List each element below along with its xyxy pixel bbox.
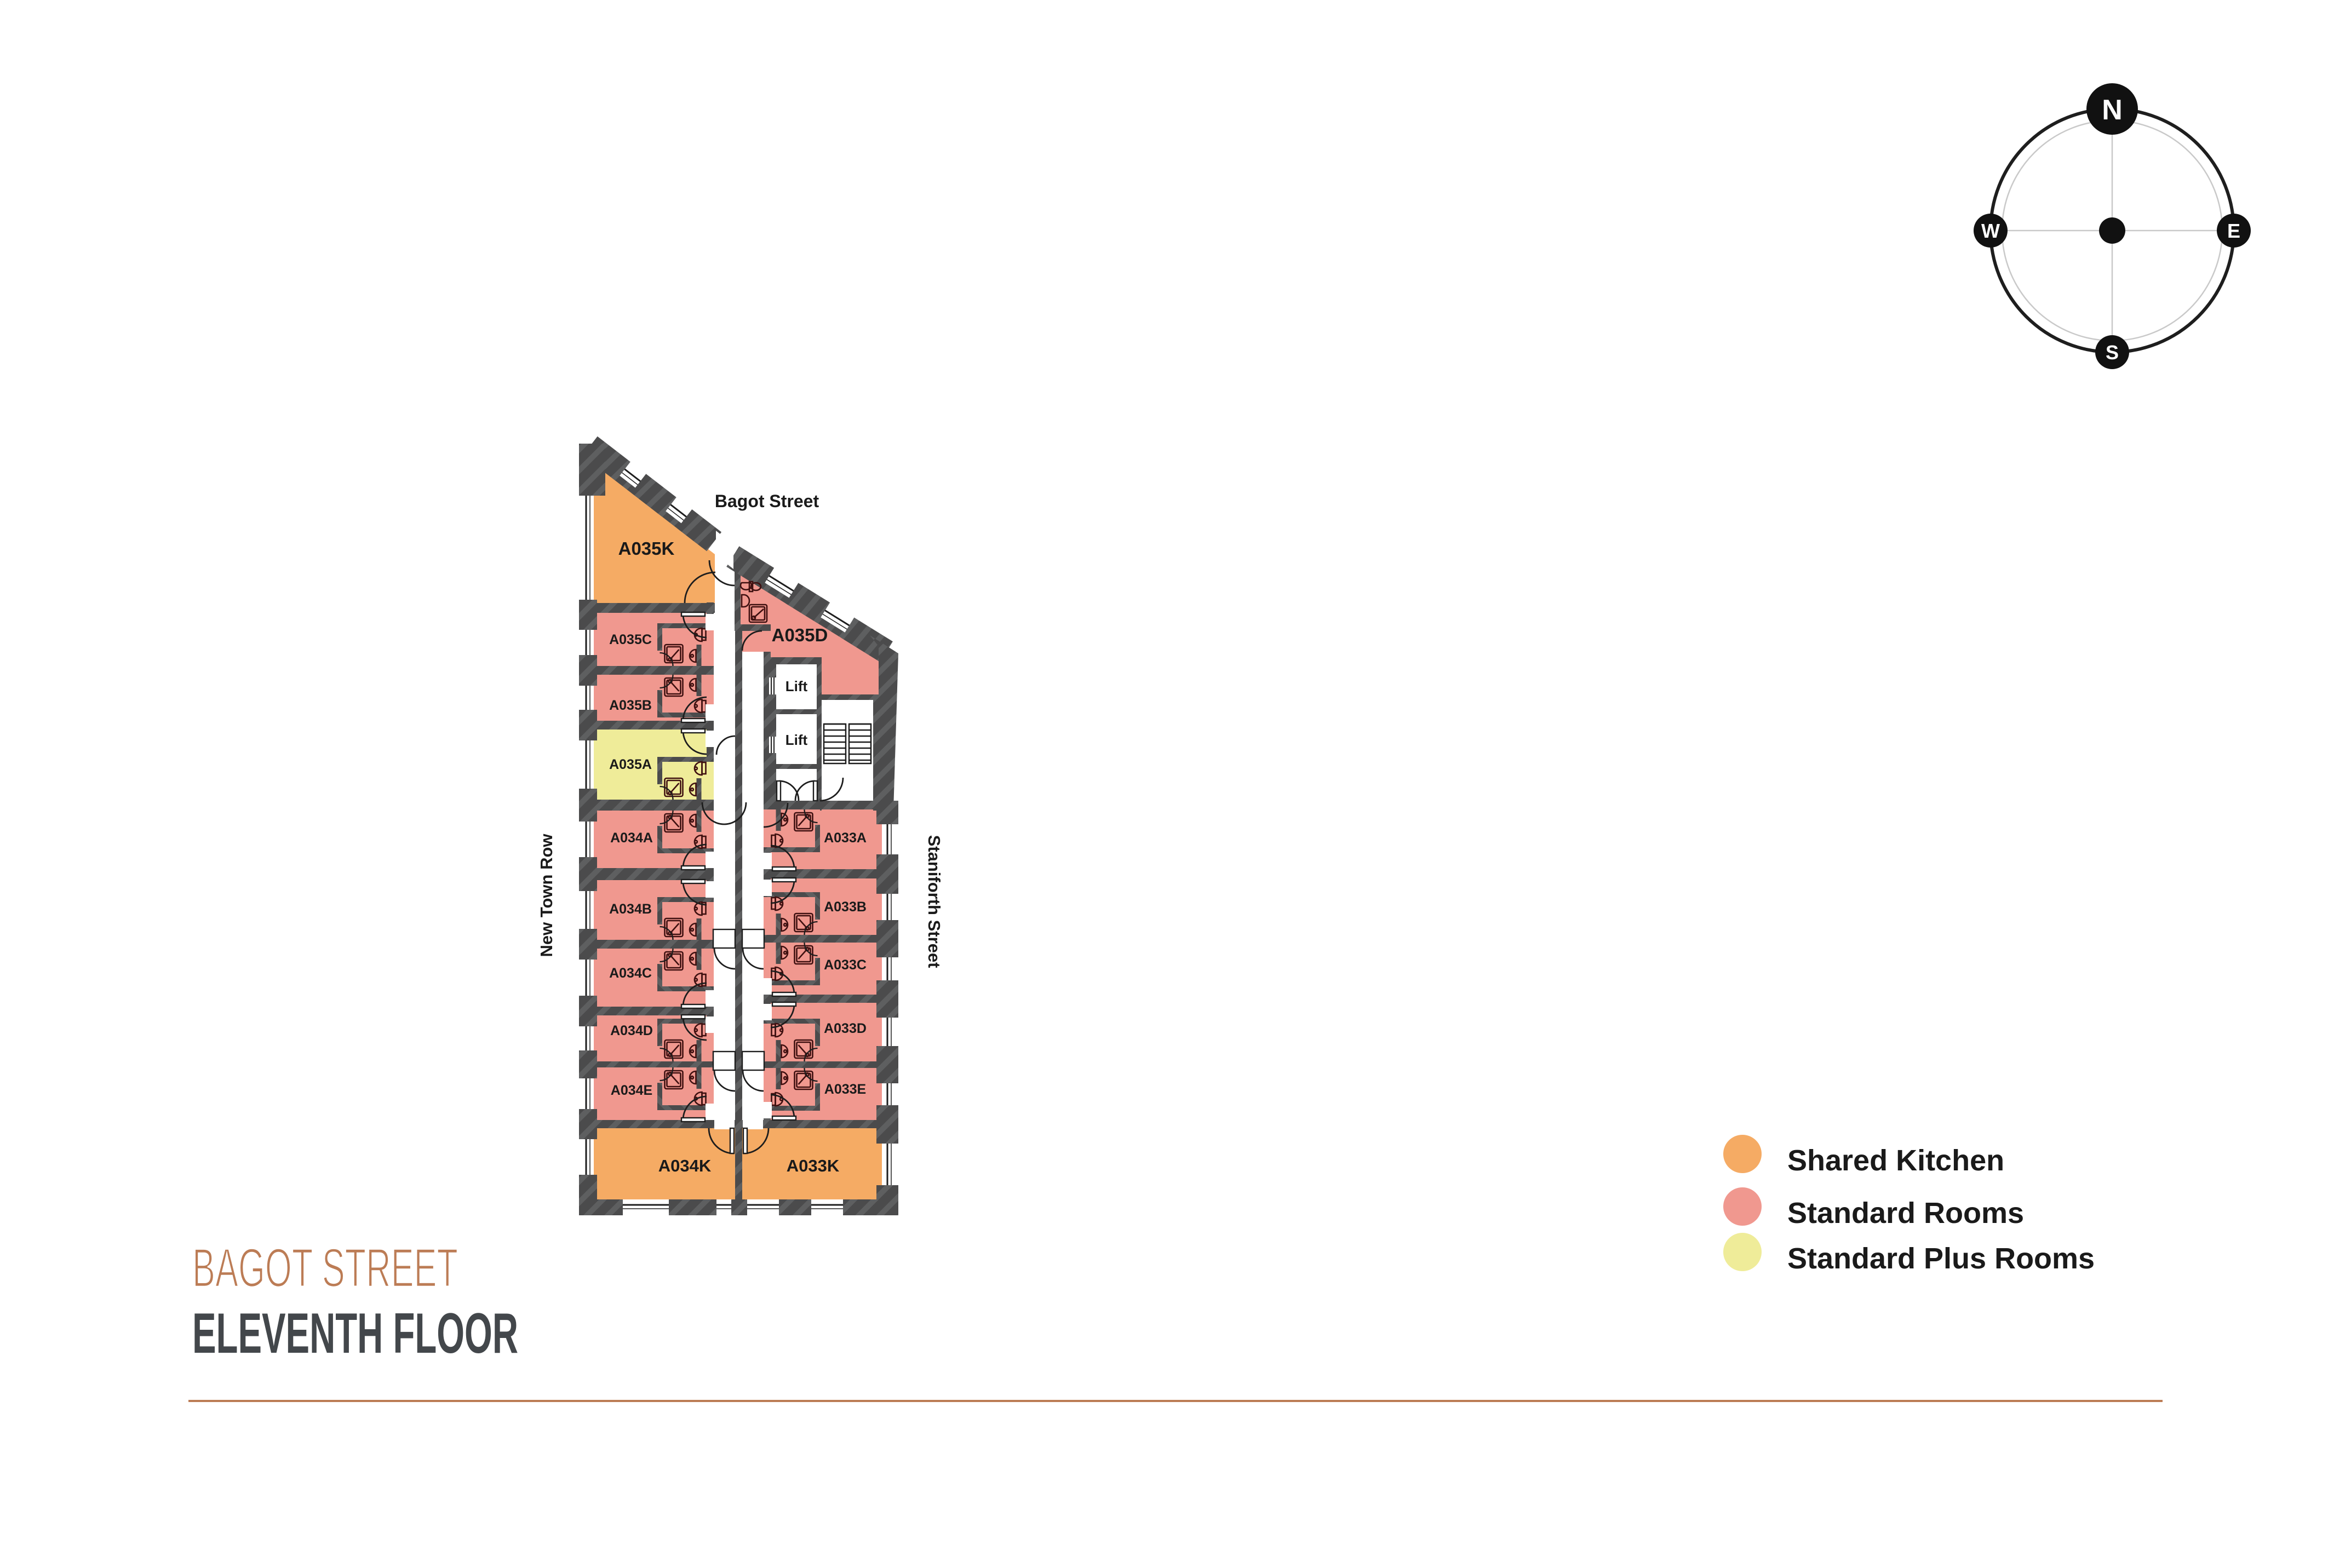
svg-text:A033E: A033E	[824, 1082, 866, 1097]
svg-text:Bagot Street: Bagot Street	[715, 491, 819, 511]
svg-text:S: S	[2106, 341, 2119, 364]
svg-text:Standard Rooms: Standard Rooms	[1787, 1197, 2024, 1230]
svg-text:A035A: A035A	[609, 757, 652, 772]
svg-text:New Town Row: New Town Row	[537, 834, 556, 957]
svg-text:Standard Plus Rooms: Standard Plus Rooms	[1787, 1242, 2095, 1275]
svg-text:A033B: A033B	[824, 899, 867, 915]
svg-text:A035K: A035K	[618, 538, 675, 559]
svg-text:BAGOT STREET: BAGOT STREET	[192, 1237, 458, 1298]
svg-text:A035C: A035C	[609, 632, 652, 647]
svg-text:A034B: A034B	[609, 901, 652, 917]
svg-text:Lift: Lift	[785, 678, 808, 694]
svg-text:W: W	[1981, 220, 2000, 242]
svg-text:A033A: A033A	[824, 830, 867, 846]
svg-text:A033D: A033D	[824, 1021, 867, 1036]
svg-text:A034C: A034C	[609, 966, 652, 981]
svg-text:Shared Kitchen: Shared Kitchen	[1787, 1144, 2004, 1177]
svg-text:Staniforth Street: Staniforth Street	[925, 835, 944, 968]
svg-text:A035B: A035B	[609, 698, 652, 713]
svg-text:Lift: Lift	[785, 732, 808, 748]
svg-text:A033C: A033C	[824, 957, 867, 973]
svg-text:ELEVENTH FLOOR: ELEVENTH FLOOR	[192, 1302, 518, 1365]
svg-text:A034K: A034K	[658, 1156, 712, 1175]
svg-text:A034E: A034E	[611, 1083, 652, 1098]
svg-text:E: E	[2227, 220, 2240, 242]
svg-text:A034D: A034D	[610, 1023, 653, 1038]
svg-text:A034A: A034A	[610, 830, 653, 846]
svg-text:N: N	[2102, 94, 2123, 126]
svg-text:A035D: A035D	[772, 625, 828, 645]
svg-text:A033K: A033K	[787, 1156, 840, 1175]
